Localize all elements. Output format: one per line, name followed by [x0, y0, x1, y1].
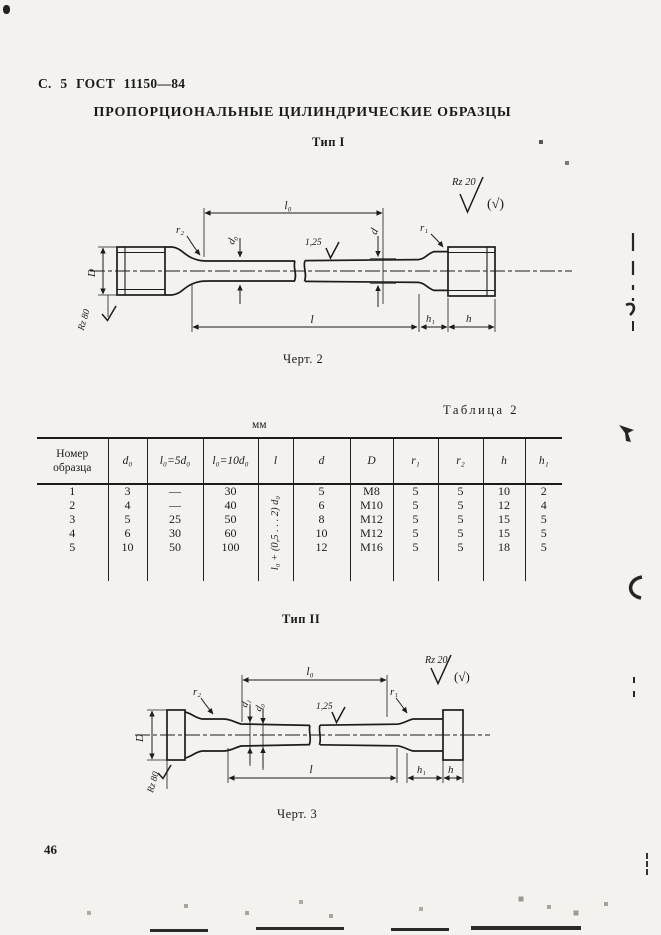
surface-finish-icon [326, 242, 339, 258]
dim-label-r1: r₁ [390, 686, 398, 698]
dimension-lines [103, 213, 494, 327]
scan-artifact-margin [613, 225, 661, 705]
table-row: 2 4 — 40 6 M10 5 5 12 4 [37, 499, 562, 513]
dim-label-d: d [368, 226, 381, 236]
col-header-specimen: Номер образца [37, 438, 108, 484]
col-header-l0-5d0: l₀=5d₀ [147, 438, 203, 484]
thread-lines [117, 247, 495, 296]
table-row: 1 3 — 30 l₀ + (0,5 . . . 2) d₀ 5 M8 5 5 … [37, 484, 562, 499]
figure2-heading: Тип II [282, 612, 320, 627]
dim-label-D: D [86, 269, 98, 278]
scan-artifact [150, 929, 208, 932]
page-number: 46 [44, 842, 57, 858]
dim-label-d0: d₀ [226, 233, 240, 246]
roughness-label: 1,25 [316, 702, 333, 712]
specimen-outline [117, 247, 495, 296]
dim-label-r2: r₂ [193, 686, 201, 698]
col-header-r2: r₂ [438, 438, 483, 484]
dim-label-d0: d₀ [253, 701, 267, 713]
surface-finish-icon [102, 306, 116, 321]
roughness-paren-label: (√) [487, 197, 504, 212]
scanned-page: { "page": { "header": "С. 5 ГОСТ 11150—8… [0, 0, 661, 935]
page-header: С. 5 ГОСТ 11150—84 [38, 76, 185, 92]
dim-label-h: h [466, 313, 472, 325]
dim-label-h1: h₁ [426, 314, 435, 325]
roughness-paren-label: (√) [454, 669, 470, 684]
figure2-specimen-drawing: l₀ Rz 20 (√) r₂ r₁ d₁ d₀ 1,25 D Rz 80 l … [105, 652, 525, 832]
roughness-rz80-label: Rz 80 [146, 770, 162, 795]
figure1-heading: Тип I [312, 135, 345, 150]
scan-artifact [646, 853, 648, 875]
figure1-caption: Черт. 2 [283, 352, 323, 367]
roughness-rz20-label: Rz 20 [451, 177, 476, 188]
col-header-D: D [350, 438, 393, 484]
table-rule-extension-row [37, 555, 562, 581]
table-units-label: мм [252, 419, 267, 431]
dim-label-D: D [134, 734, 146, 743]
dim-label-r2: r₂ [176, 224, 184, 236]
extension-lines [98, 208, 495, 332]
table-row: 5 10 50 100 12 M16 5 5 18 5 [37, 541, 562, 555]
scan-artifact [391, 928, 449, 931]
dim-label-l: l [310, 312, 314, 326]
document-title: ПРОПОРЦИОНАЛЬНЫЕ ЦИЛИНДРИЧЕСКИЕ ОБРАЗЦЫ [0, 105, 605, 121]
col-header-h1: h₁ [525, 438, 562, 484]
col-header-d0: d₀ [108, 438, 147, 484]
dim-label-l0: l₀ [284, 200, 291, 212]
col-header-l: l [258, 438, 293, 484]
figure1-specimen-drawing: l₀ r₂ d₀ 1,25 d r₁ Rz 20 (√) D Rz 80 l h… [60, 168, 600, 364]
scan-artifact [471, 926, 581, 930]
scan-artifact [0, 0, 2, 2]
dim-label-h1: h₁ [417, 765, 426, 776]
col-header-d: d [293, 438, 350, 484]
dim-label-r1: r₁ [420, 222, 428, 234]
l-formula-cell: l₀ + (0,5 . . . 2) d₀ [258, 484, 293, 581]
col-header-l0-10d0: l₀=10d₀ [203, 438, 258, 484]
col-header-r1: r₁ [393, 438, 438, 484]
roughness-rz80-label: Rz 80 [76, 308, 92, 333]
dim-label-l: l [309, 762, 313, 776]
dim-label-l0: l₀ [306, 666, 313, 678]
table-header-row: Номер образца d₀ l₀=5d₀ l₀=10d₀ l d D r₁… [37, 438, 562, 484]
col-header-h: h [483, 438, 525, 484]
roughness-rz20-label: Rz 20 [424, 655, 448, 666]
table-row: 3 5 25 50 8 M12 5 5 15 5 [37, 513, 562, 527]
surface-finish-icon [332, 707, 345, 723]
roughness-label: 1,25 [305, 238, 322, 248]
table-row: 4 6 30 60 10 M12 5 5 15 5 [37, 527, 562, 541]
figure2-caption: Черт. 3 [277, 807, 317, 822]
scan-artifact [256, 927, 344, 930]
table-label: Таблица 2 [443, 403, 519, 418]
dim-label-h: h [448, 764, 454, 776]
scan-artifact [3, 5, 10, 14]
specimen-table: Номер образца d₀ l₀=5d₀ l₀=10d₀ l d D r₁… [37, 437, 562, 581]
